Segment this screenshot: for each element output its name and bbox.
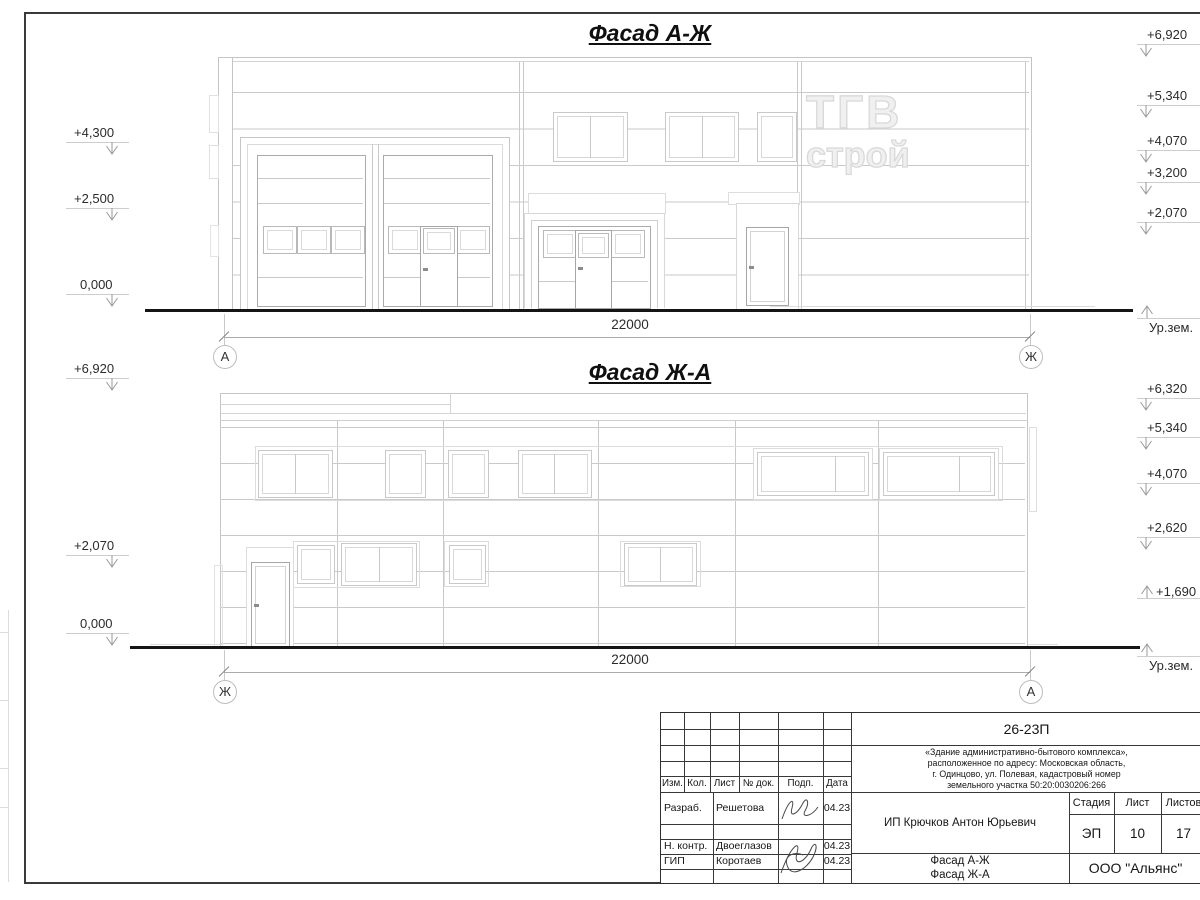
col-data: Дата	[823, 776, 851, 792]
window	[757, 452, 869, 496]
tb-line	[661, 745, 1200, 746]
door-panel-line	[384, 203, 490, 204]
door-handle-icon	[749, 266, 754, 269]
door-handle-icon	[423, 268, 428, 271]
wall-bracket	[210, 225, 219, 257]
window	[883, 452, 995, 496]
row-name: Решетова	[716, 792, 764, 824]
dimension-label: 22000	[550, 317, 710, 332]
window	[665, 112, 739, 162]
elevation-mark: +1,690	[1137, 585, 1200, 615]
garage-window	[423, 228, 455, 254]
garage-window	[578, 233, 609, 258]
elevation-arrow-down-icon	[1138, 105, 1154, 118]
object-description-line: расположенное по адресу: Московская обла…	[851, 758, 1200, 769]
row-name: Двоеглазов	[716, 839, 772, 854]
margin-line	[0, 632, 8, 633]
elevation-arrow-down-icon	[1138, 398, 1154, 411]
window	[448, 450, 489, 498]
elevation-line	[1137, 318, 1200, 319]
watermark-line2: строй	[806, 136, 910, 174]
elevation-mark: 0,000	[66, 278, 129, 308]
parapet-step	[450, 393, 451, 413]
downpipe	[214, 565, 223, 647]
elevation-arrow-down-icon	[104, 378, 120, 391]
elevation-value: +4,070	[1137, 467, 1200, 480]
client-name: ИП Крючков Антон Юрьевич	[851, 792, 1069, 853]
col-doc: № док.	[739, 776, 778, 792]
elevation-mark: +2,070	[66, 539, 129, 569]
extension-line	[1030, 314, 1031, 347]
garage-lintel	[528, 193, 666, 214]
frame-top	[24, 12, 1200, 14]
elevation-mark: +2,070	[1137, 206, 1200, 236]
sheet-name: Фасад А-Ж Фасад Ж-А	[851, 854, 1069, 882]
col-list: Лист	[710, 776, 739, 792]
col-kol: Кол.	[684, 776, 710, 792]
elevation-value: +4,300	[66, 126, 129, 139]
facade-bottom-title: Фасад Ж-А	[520, 359, 780, 386]
tb-line	[661, 761, 851, 762]
company-name: ООО "Альянс"	[1069, 853, 1200, 883]
window	[258, 450, 333, 498]
sheet-value: 10	[1114, 814, 1161, 853]
elevation-arrow-up-icon	[1139, 305, 1155, 318]
elevation-mark: +2,500	[66, 192, 129, 222]
elevation-mark: +6,920	[1137, 28, 1200, 58]
elevation-mark: +4,070	[1137, 467, 1200, 497]
elevation-mark: +3,200	[1137, 166, 1200, 196]
sheet-name-line2: Фасад Ж-А	[851, 868, 1069, 882]
parapet-line	[221, 404, 450, 405]
margin-line	[0, 807, 8, 808]
signature	[777, 835, 823, 881]
ground-line	[130, 646, 1140, 649]
logo-watermark: ТГВ строй	[806, 88, 910, 174]
row-role: ГИП	[664, 854, 685, 869]
door-handle-icon	[254, 604, 259, 607]
elevation-value: +2,070	[1137, 206, 1200, 219]
portal-divider	[378, 144, 379, 309]
elevation-value: +6,320	[1137, 382, 1200, 395]
wall-bracket	[209, 145, 219, 179]
door-panel-line	[258, 277, 363, 278]
panel-joint	[801, 62, 802, 309]
garage-window	[331, 226, 365, 254]
parapet	[220, 393, 1028, 421]
elevation-line	[1137, 598, 1200, 599]
elevation-arrow-down-icon	[104, 208, 120, 221]
axis-bubble: Ж	[213, 680, 237, 704]
elevation-value: +5,340	[1137, 89, 1200, 102]
window	[624, 543, 697, 586]
elevation-arrow-down-icon	[104, 555, 120, 568]
margin-line	[8, 610, 9, 882]
elevation-arrow-up-icon	[1139, 585, 1155, 598]
facade-top-title: Фасад А-Ж	[520, 20, 780, 47]
elevation-value: 0,000	[66, 617, 129, 630]
tb-line	[661, 729, 851, 730]
elevation-mark: +2,620	[1137, 521, 1200, 551]
panel-joint	[1025, 62, 1026, 309]
row-name: Коротаев	[716, 854, 761, 869]
margin-line	[0, 768, 8, 769]
elevation-arrow-up-icon	[1139, 643, 1155, 656]
elevation-arrow-down-icon	[1138, 483, 1154, 496]
frame-left	[24, 12, 26, 884]
elevation-arrow-down-icon	[104, 633, 120, 646]
axis-bubble: Ж	[1019, 345, 1043, 369]
ground-level-label: Ур.зем.	[1149, 321, 1193, 334]
object-description: «Здание административно-бытового комплек…	[851, 747, 1200, 791]
row-role: Н. контр.	[664, 839, 707, 854]
document-code: 26-23П	[851, 713, 1200, 745]
panel-joint	[519, 62, 520, 309]
stage-label: Стадия	[1069, 792, 1114, 814]
window	[449, 545, 486, 584]
elevation-mark: +5,340	[1137, 89, 1200, 119]
sheets-label: Листов	[1161, 792, 1200, 814]
elevation-arrow-down-icon	[1138, 150, 1154, 163]
col-izm: Изм.	[661, 776, 684, 792]
dimension-line	[224, 672, 1030, 673]
elevation-value: +3,200	[1137, 166, 1200, 179]
elevation-arrow-down-icon	[1138, 537, 1154, 550]
parapet-line	[221, 413, 1026, 414]
watermark-line1: ТГВ	[806, 88, 910, 136]
elevation-value: +2,070	[66, 539, 129, 552]
door-handle-icon	[578, 267, 583, 270]
wall-bracket	[209, 95, 219, 133]
window	[341, 543, 417, 586]
object-description-line: г. Одинцово, ул. Полевая, кадастровый но…	[851, 769, 1200, 780]
garage-window	[388, 226, 422, 254]
margin-line	[0, 700, 8, 701]
elevation-arrow-down-icon	[1138, 437, 1154, 450]
dimension-line	[224, 337, 1030, 338]
elevation-value: +2,620	[1137, 521, 1200, 534]
garage-window	[297, 226, 331, 254]
parapet-line	[233, 61, 1029, 62]
downpipe	[1029, 427, 1037, 512]
axis-bubble: А	[1019, 680, 1043, 704]
grade-line	[1028, 644, 1058, 645]
row-role: Разраб.	[664, 792, 702, 824]
elevation-value: +5,340	[1137, 421, 1200, 434]
axis-bubble: А	[213, 345, 237, 369]
elevation-mark: +4,300	[66, 126, 129, 156]
elevation-mark: +4,070	[1137, 134, 1200, 164]
drawing-sheet: Фасад А-Ж ТГВ	[0, 0, 1200, 900]
garage-window	[543, 230, 577, 258]
elevation-arrow-down-icon	[1138, 44, 1154, 57]
elevation-line	[1137, 656, 1200, 657]
elevation-mark: +6,320	[1137, 382, 1200, 412]
elevation-value: 0,000	[66, 278, 129, 291]
door-panel-line	[258, 203, 363, 204]
row-date: 04.23	[823, 839, 851, 854]
object-description-line: земельного участка 50:20:0030206:266	[851, 780, 1200, 791]
window	[757, 112, 797, 162]
elevation-mark: +6,920	[66, 362, 129, 392]
window	[518, 450, 592, 498]
sheet-name-line1: Фасад А-Ж	[851, 854, 1069, 868]
elevation-mark: +5,340	[1137, 421, 1200, 451]
ground-level-label: Ур.зем.	[1149, 659, 1193, 672]
elevation-value: +6,920	[1137, 28, 1200, 41]
elevation-arrow-down-icon	[1138, 222, 1154, 235]
extension-line	[224, 314, 225, 347]
ground-line	[145, 309, 1133, 312]
sheet-label: Лист	[1114, 792, 1161, 814]
elevation-value: +4,070	[1137, 134, 1200, 147]
portal-divider	[372, 144, 373, 309]
door-panel-line	[258, 178, 363, 179]
garage-window	[263, 226, 297, 254]
elevation-mark: 0,000	[66, 617, 129, 647]
elevation-arrow-down-icon	[1138, 182, 1154, 195]
garage-window	[611, 230, 645, 258]
ground-level-mark: Ур.зем.	[1137, 656, 1200, 686]
window	[553, 112, 628, 162]
row-date: 04.23	[823, 792, 851, 824]
row-date: 04.23	[823, 854, 851, 869]
door-panel-line	[384, 178, 490, 179]
grade-line	[770, 306, 1095, 307]
pilaster	[218, 57, 233, 310]
dimension-label: 22000	[550, 652, 710, 667]
sheets-value: 17	[1161, 814, 1200, 853]
tb-line	[661, 824, 851, 825]
window	[297, 545, 335, 584]
garage-window	[456, 226, 490, 254]
grade-line	[150, 644, 222, 645]
elevation-value: +2,500	[66, 192, 129, 205]
signature	[779, 795, 821, 823]
extension-line	[1030, 650, 1031, 682]
stage-value: ЭП	[1069, 814, 1114, 853]
title-block: 26-23П «Здание административно-бытового …	[660, 712, 1200, 884]
ground-level-mark: Ур.зем.	[1137, 318, 1200, 348]
elevation-arrow-down-icon	[104, 294, 120, 307]
window	[385, 450, 426, 498]
col-podp: Подп.	[778, 776, 823, 792]
extension-line	[224, 650, 225, 682]
object-description-line: «Здание административно-бытового комплек…	[851, 747, 1200, 758]
elevation-arrow-down-icon	[104, 142, 120, 155]
elevation-value: +6,920	[66, 362, 129, 375]
